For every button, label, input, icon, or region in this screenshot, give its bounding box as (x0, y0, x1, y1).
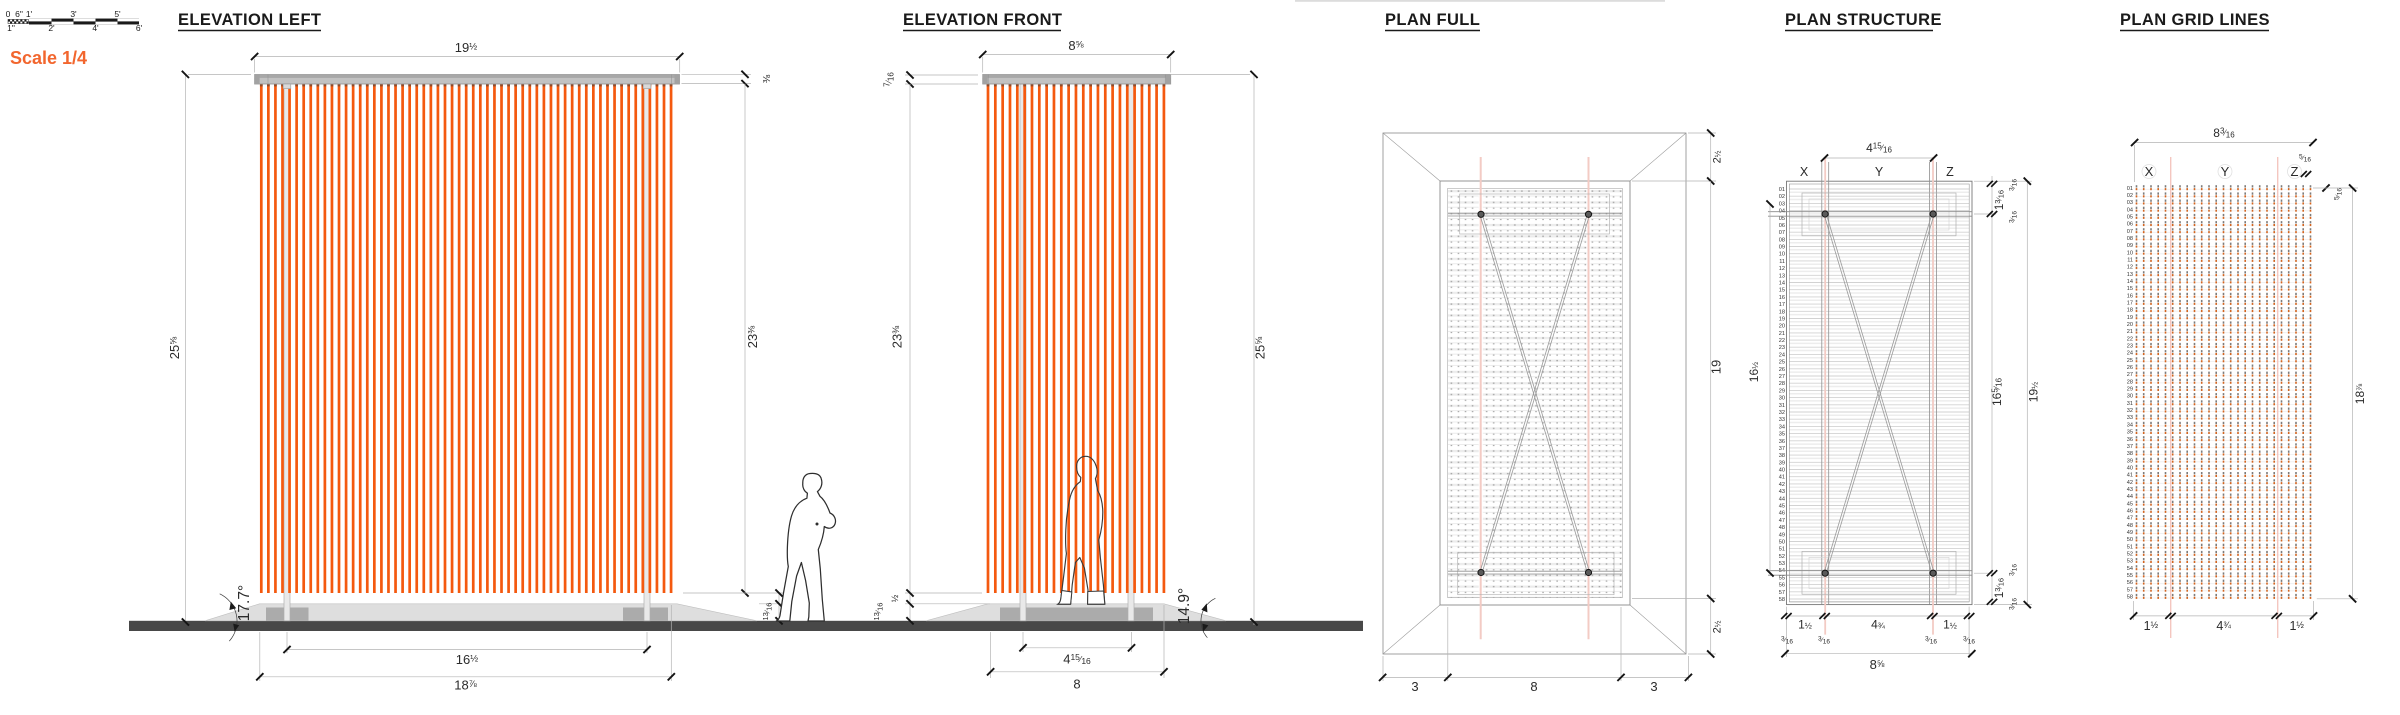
svg-text:05: 05 (2127, 215, 2133, 221)
svg-text:11: 11 (2127, 258, 2133, 264)
svg-text:25: 25 (2127, 358, 2133, 364)
svg-text:27: 27 (2127, 372, 2133, 378)
svg-text:19: 19 (1709, 360, 1724, 374)
svg-text:23: 23 (1779, 345, 1785, 351)
svg-text:07: 07 (2127, 229, 2133, 235)
svg-text:½: ½ (890, 594, 900, 602)
svg-text:55: 55 (2127, 573, 2133, 579)
svg-text:20: 20 (1779, 324, 1785, 330)
svg-text:36: 36 (1779, 439, 1785, 445)
svg-text:37: 37 (2127, 444, 2133, 450)
svg-text:2½: 2½ (1712, 150, 1724, 163)
svg-text:13: 13 (1779, 273, 1785, 279)
svg-text:38: 38 (1779, 453, 1785, 459)
svg-text:50: 50 (2127, 537, 2133, 543)
svg-text:ELEVATION LEFT: ELEVATION LEFT (178, 11, 321, 29)
svg-text:43: 43 (1779, 489, 1785, 495)
svg-text:2½: 2½ (1712, 620, 1724, 633)
svg-text:40: 40 (2127, 465, 2133, 471)
svg-text:13: 13 (2127, 272, 2133, 278)
svg-text:ELEVATION FRONT: ELEVATION FRONT (903, 11, 1062, 29)
svg-text:58: 58 (2127, 595, 2133, 601)
svg-text:07: 07 (1779, 230, 1785, 236)
svg-text:33: 33 (1779, 417, 1785, 423)
svg-text:3: 3 (1650, 679, 1657, 694)
svg-text:Y: Y (2221, 164, 2230, 179)
svg-text:31: 31 (2127, 401, 2133, 407)
svg-text:12: 12 (1779, 266, 1785, 272)
svg-text:46: 46 (1779, 511, 1785, 517)
svg-text:29: 29 (1779, 388, 1785, 394)
svg-text:⅜: ⅜ (762, 74, 773, 83)
svg-text:19: 19 (1779, 317, 1785, 323)
svg-text:2': 2' (48, 23, 55, 33)
svg-text:0: 0 (6, 9, 11, 19)
svg-text:54: 54 (2127, 566, 2133, 572)
svg-text:57: 57 (1779, 590, 1785, 596)
svg-text:6": 6" (15, 9, 23, 19)
svg-text:57: 57 (2127, 587, 2133, 593)
svg-text:22: 22 (1779, 338, 1785, 344)
svg-text:8: 8 (1073, 677, 1080, 692)
svg-text:23: 23 (2127, 344, 2133, 350)
svg-text:1": 1" (7, 23, 15, 33)
svg-text:6': 6' (136, 23, 143, 33)
svg-text:18: 18 (2127, 308, 2133, 314)
svg-text:38: 38 (2127, 451, 2133, 457)
svg-text:16: 16 (1779, 295, 1785, 301)
svg-text:40: 40 (1779, 468, 1785, 474)
svg-text:48: 48 (1779, 525, 1785, 531)
svg-text:41: 41 (1779, 475, 1785, 481)
svg-text:17.7°: 17.7° (236, 585, 253, 621)
svg-text:58: 58 (1779, 597, 1785, 603)
svg-text:X: X (2145, 164, 2154, 179)
svg-text:06: 06 (2127, 222, 2133, 228)
svg-text:8: 8 (1530, 679, 1537, 694)
svg-text:Z: Z (2291, 164, 2299, 179)
svg-text:21: 21 (2127, 329, 2133, 335)
svg-text:25: 25 (1779, 360, 1785, 366)
svg-text:47: 47 (2127, 516, 2133, 522)
svg-text:51: 51 (1779, 547, 1785, 553)
svg-text:28: 28 (2127, 379, 2133, 385)
svg-text:36: 36 (2127, 437, 2133, 443)
svg-text:04: 04 (2127, 207, 2133, 213)
svg-text:11: 11 (1779, 259, 1785, 265)
svg-text:27: 27 (1779, 374, 1785, 380)
svg-text:30: 30 (1779, 396, 1785, 402)
svg-text:10: 10 (1779, 252, 1785, 258)
svg-text:39: 39 (1779, 460, 1785, 466)
svg-text:09: 09 (2127, 243, 2133, 249)
svg-text:10: 10 (2127, 250, 2133, 256)
svg-text:35: 35 (2127, 430, 2133, 436)
svg-text:02: 02 (2127, 193, 2133, 199)
svg-text:48: 48 (2127, 523, 2133, 529)
svg-text:3: 3 (1411, 679, 1418, 694)
svg-text:02: 02 (1779, 194, 1785, 200)
svg-text:14.9°: 14.9° (1176, 588, 1193, 624)
svg-text:26: 26 (2127, 365, 2133, 371)
svg-text:31: 31 (1779, 403, 1785, 409)
svg-text:X: X (1800, 165, 1809, 179)
svg-text:28: 28 (1779, 381, 1785, 387)
svg-text:45: 45 (1779, 504, 1785, 510)
svg-text:20: 20 (2127, 322, 2133, 328)
svg-text:51: 51 (2127, 544, 2133, 550)
svg-text:32: 32 (1779, 410, 1785, 416)
svg-text:35: 35 (1779, 432, 1785, 438)
svg-text:22: 22 (2127, 336, 2133, 342)
svg-text:49: 49 (1779, 532, 1785, 538)
svg-text:21: 21 (1779, 331, 1785, 337)
svg-text:3': 3' (70, 9, 77, 19)
svg-text:49: 49 (2127, 530, 2133, 536)
svg-text:44: 44 (1779, 496, 1785, 502)
svg-text:03: 03 (2127, 200, 2133, 206)
svg-text:29: 29 (2127, 387, 2133, 393)
svg-text:16½: 16½ (1747, 362, 1761, 382)
svg-text:39: 39 (2127, 458, 2133, 464)
svg-text:03: 03 (1779, 201, 1785, 207)
svg-text:17: 17 (2127, 301, 2133, 307)
svg-text:34: 34 (2127, 422, 2133, 428)
svg-text:14: 14 (2127, 279, 2133, 285)
svg-text:Scale 1/4: Scale 1/4 (10, 48, 87, 68)
svg-text:42: 42 (1779, 482, 1785, 488)
svg-text:08: 08 (2127, 236, 2133, 242)
svg-text:34: 34 (1779, 424, 1785, 430)
svg-text:45: 45 (2127, 501, 2133, 507)
svg-text:56: 56 (1779, 583, 1785, 589)
svg-text:06: 06 (1779, 223, 1785, 229)
svg-text:12: 12 (2127, 265, 2133, 271)
svg-text:53: 53 (1779, 561, 1785, 567)
svg-text:17: 17 (1779, 302, 1785, 308)
svg-text:Y: Y (1875, 165, 1884, 179)
svg-text:24: 24 (2127, 351, 2133, 357)
svg-text:56: 56 (2127, 580, 2133, 586)
svg-text:43: 43 (2127, 487, 2133, 493)
svg-text:4¾: 4¾ (1871, 618, 1886, 632)
svg-text:18: 18 (1779, 309, 1785, 315)
svg-text:PLAN GRID LINES: PLAN GRID LINES (2120, 11, 2270, 29)
svg-text:5': 5' (114, 9, 121, 19)
svg-text:PLAN STRUCTURE: PLAN STRUCTURE (1785, 11, 1942, 29)
svg-text:26: 26 (1779, 367, 1785, 373)
svg-text:15: 15 (1779, 288, 1785, 294)
svg-text:24: 24 (1779, 352, 1785, 358)
svg-text:41: 41 (2127, 473, 2133, 479)
svg-text:05: 05 (1779, 216, 1785, 222)
svg-text:1½: 1½ (1798, 618, 1812, 632)
svg-text:19: 19 (2127, 315, 2133, 321)
svg-text:47: 47 (1779, 518, 1785, 524)
svg-text:15: 15 (2127, 286, 2133, 292)
svg-text:53: 53 (2127, 559, 2133, 565)
svg-text:01: 01 (2127, 186, 2133, 192)
svg-text:Z: Z (1946, 165, 1954, 179)
svg-text:1': 1' (26, 9, 33, 19)
svg-text:32: 32 (2127, 408, 2133, 414)
svg-text:44: 44 (2127, 494, 2133, 500)
svg-text:01: 01 (1779, 187, 1785, 193)
svg-text:30: 30 (2127, 394, 2133, 400)
svg-text:16: 16 (2127, 293, 2133, 299)
svg-text:33: 33 (2127, 415, 2133, 421)
svg-text:52: 52 (1779, 554, 1785, 560)
svg-text:55: 55 (1779, 575, 1785, 581)
svg-text:08: 08 (1779, 237, 1785, 243)
svg-text:09: 09 (1779, 245, 1785, 251)
svg-text:4': 4' (92, 23, 99, 33)
svg-text:46: 46 (2127, 509, 2133, 515)
svg-text:PLAN FULL: PLAN FULL (1385, 11, 1480, 29)
svg-text:42: 42 (2127, 480, 2133, 486)
svg-text:14: 14 (1779, 281, 1785, 287)
svg-text:19½: 19½ (2027, 382, 2041, 402)
svg-text:52: 52 (2127, 552, 2133, 558)
svg-text:54: 54 (1779, 568, 1785, 574)
svg-text:37: 37 (1779, 446, 1785, 452)
svg-text:50: 50 (1779, 540, 1785, 546)
svg-text:1½: 1½ (1943, 618, 1957, 632)
